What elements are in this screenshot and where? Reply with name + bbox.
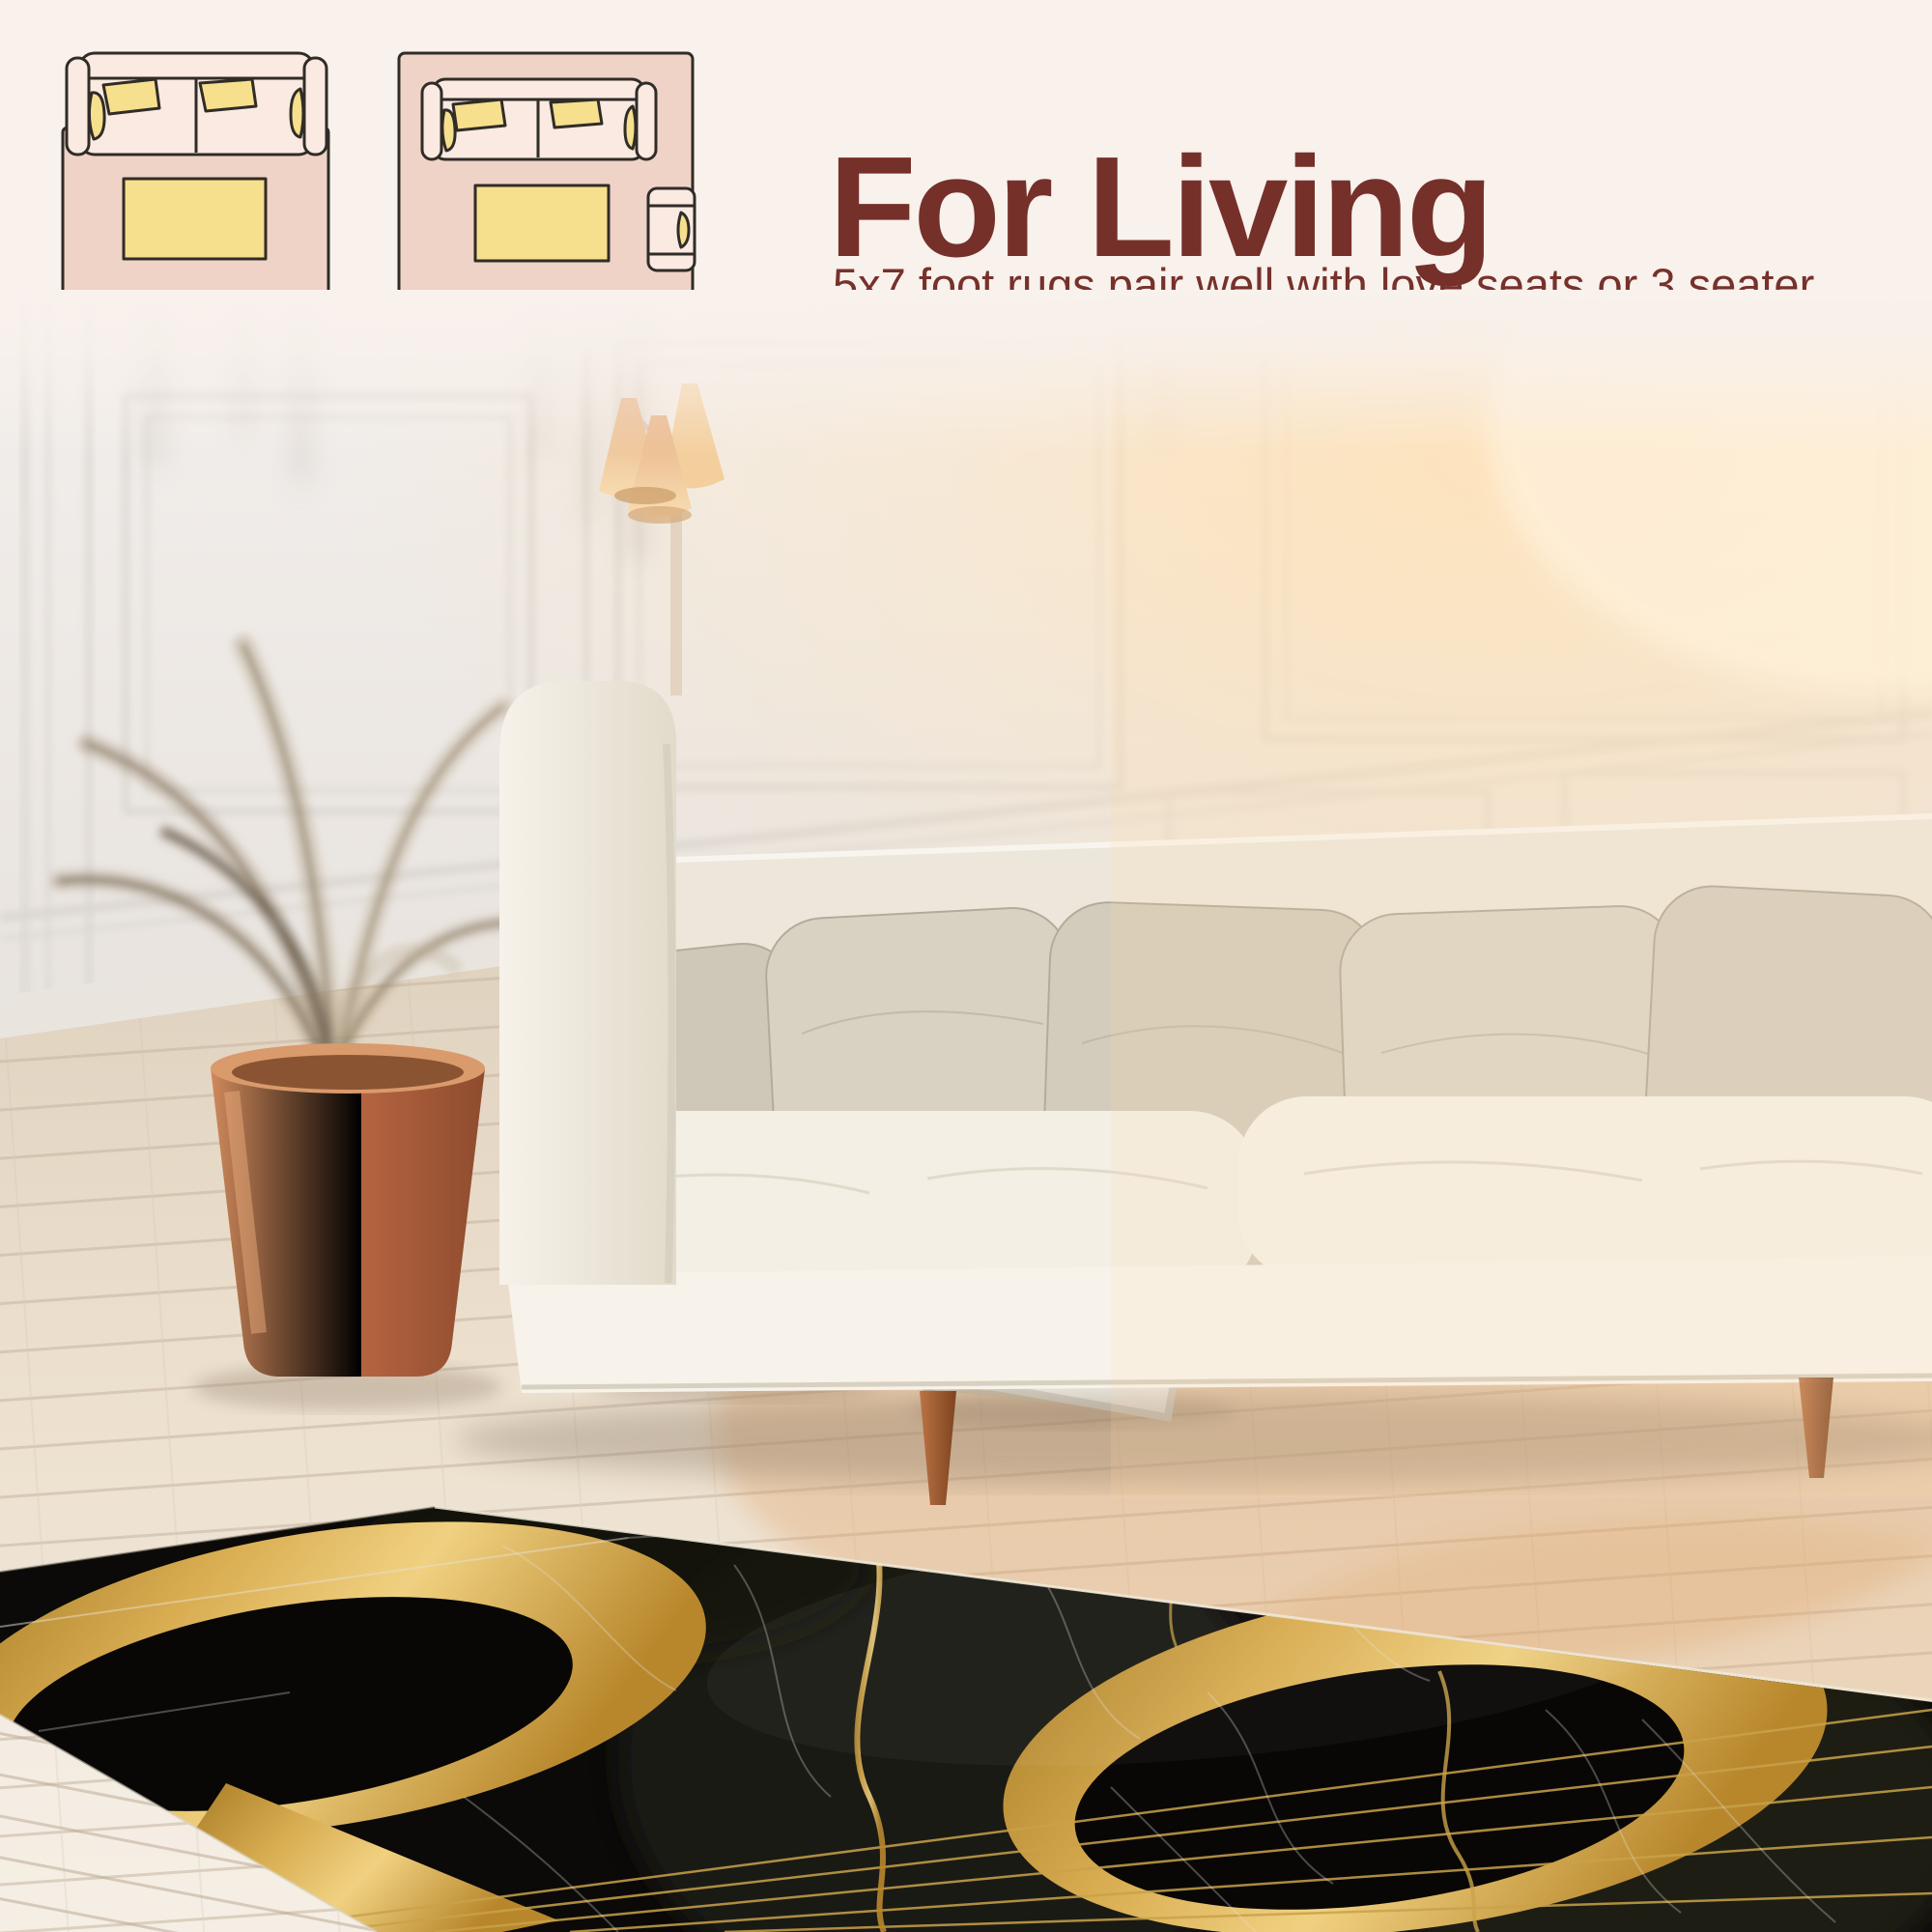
- light-beam: [1111, 290, 1932, 1497]
- diagram-side-pillow: [291, 89, 303, 137]
- living-room-scene: [0, 290, 1932, 1932]
- diagram-side-pillow: [89, 93, 104, 139]
- diagram-5x7-drawing: [53, 39, 333, 324]
- diagram-pillow: [551, 99, 602, 128]
- rug-size-diagram-5x7: [53, 39, 333, 324]
- rug-product-infographic: 5x7: [0, 0, 1932, 1932]
- sofa-armrest: [499, 681, 676, 1285]
- diagram-armchair: [648, 188, 695, 270]
- diagram-pillow: [103, 79, 159, 114]
- diagram-sofa: [422, 79, 656, 159]
- diagram-coffee-table: [475, 185, 609, 261]
- diagram-pillow: [453, 99, 505, 130]
- living-room-photo: [0, 290, 1932, 1932]
- diagram-side-pillow: [625, 106, 636, 149]
- diagram-coffee-table: [124, 179, 266, 259]
- diagram-pillow: [200, 79, 256, 111]
- photo-top-fade: [0, 290, 1932, 454]
- diagram-loveseat: [67, 53, 327, 155]
- diagram-side-pillow: [442, 110, 455, 151]
